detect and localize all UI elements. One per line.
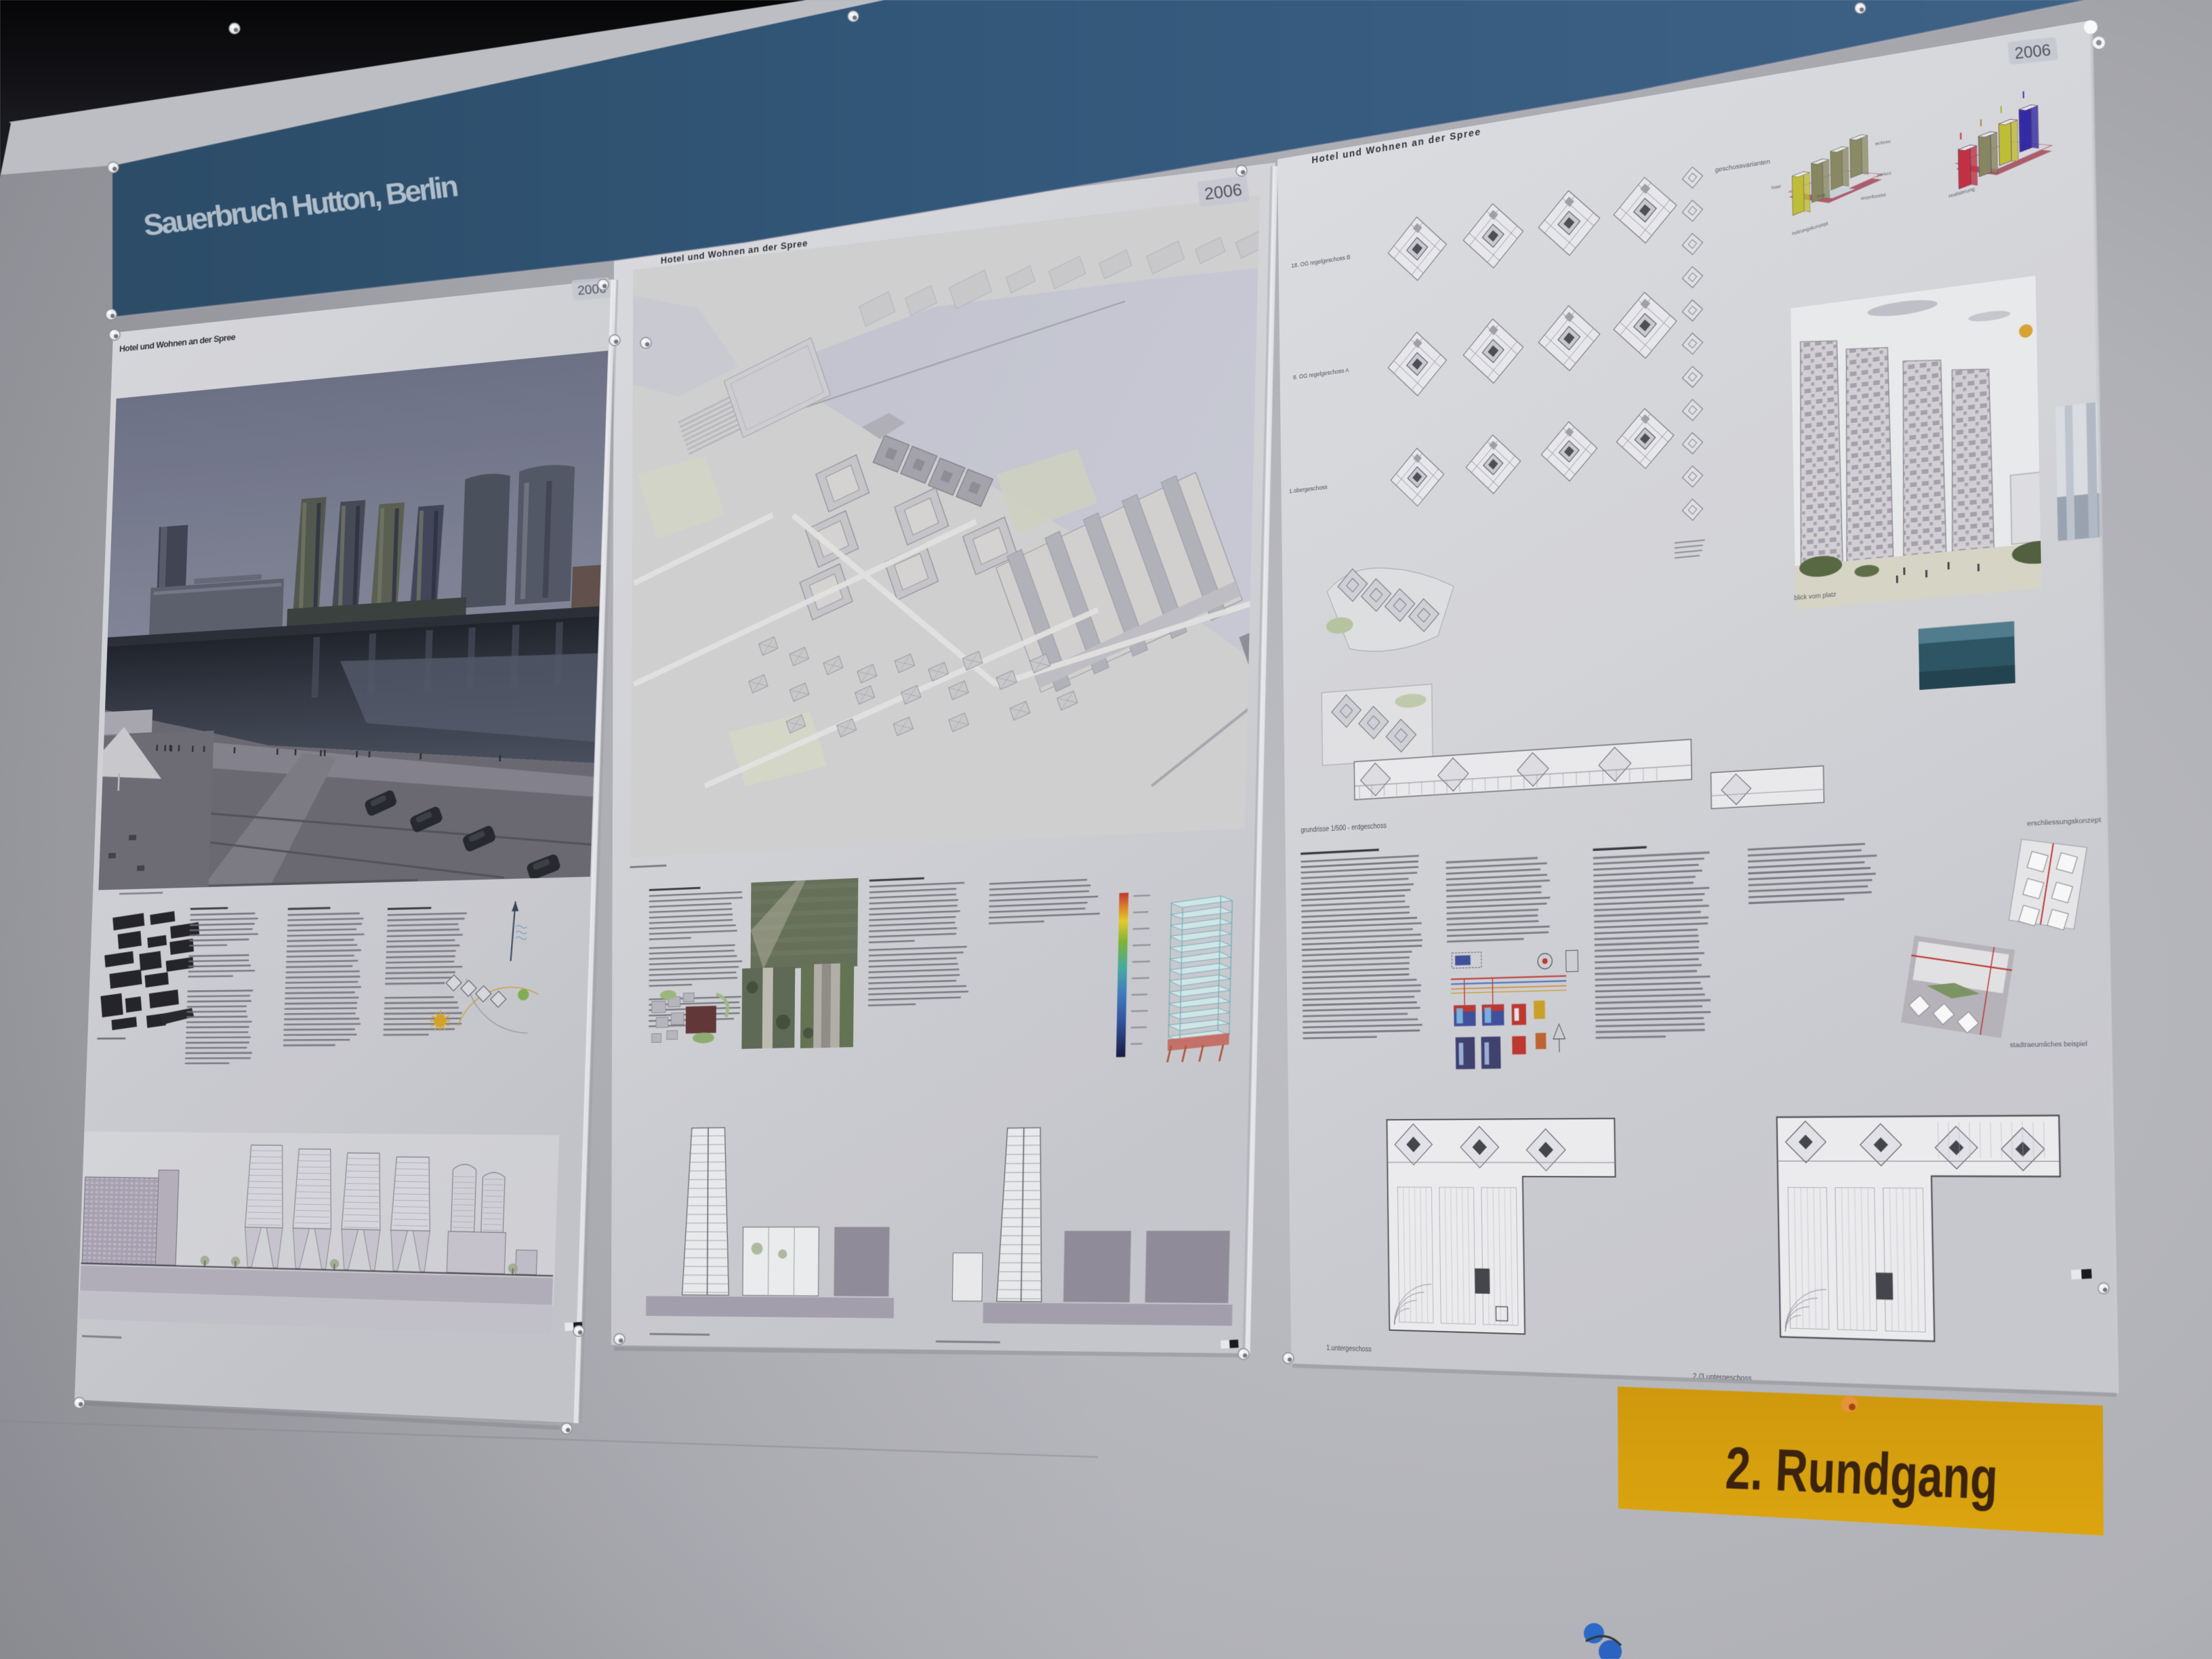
svg-text:2. Rundgang: 2. Rundgang (1724, 1434, 1999, 1512)
svg-text:2006: 2006 (2013, 41, 2051, 62)
